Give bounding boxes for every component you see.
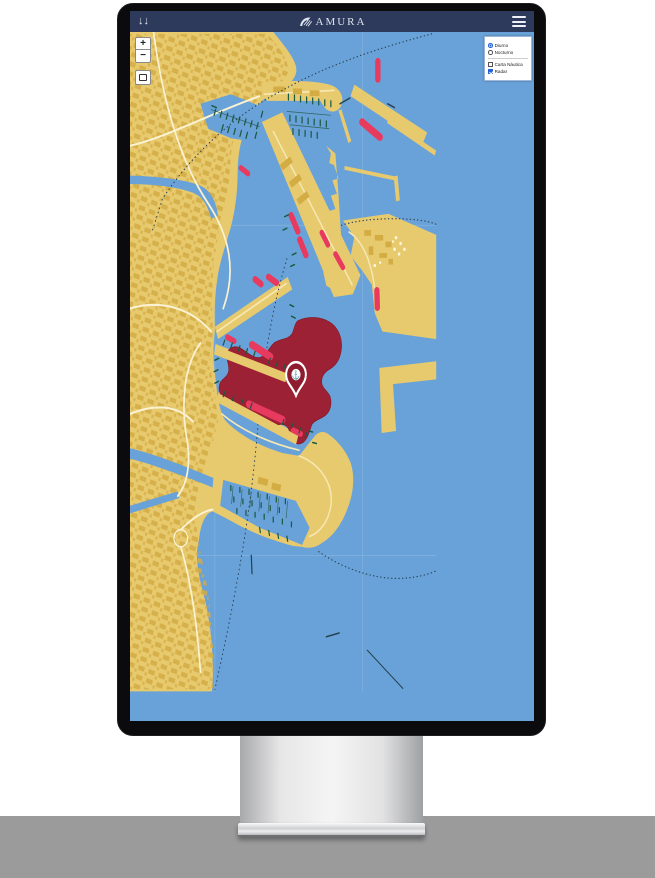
zoom-out-button[interactable]: − — [135, 50, 151, 63]
monitor-stand — [240, 729, 423, 825]
layer-label: Nocturno — [495, 50, 514, 55]
map-viewport[interactable]: ⚓ — [130, 32, 534, 721]
menu-hamburger-icon[interactable] — [512, 16, 526, 27]
checkbox-carta-nautica[interactable] — [488, 62, 493, 67]
zoom-in-button[interactable]: + — [135, 37, 151, 50]
app-logo-text: AMURA — [316, 16, 367, 28]
layer-option-radar[interactable]: Radar — [488, 69, 528, 74]
download-arrows-icon[interactable]: ↓↓ — [138, 16, 149, 27]
screen: ↓↓ AMURA — [130, 11, 534, 721]
radio-nocturno[interactable] — [488, 50, 493, 55]
radio-diurno[interactable] — [488, 43, 493, 48]
map-canvas: ⚓ — [130, 32, 534, 721]
zoom-extent-button[interactable] — [135, 70, 151, 85]
anchor-icon: ⚓ — [292, 369, 300, 380]
extent-square-icon — [139, 74, 147, 81]
layer-option-diurno[interactable]: Diurno — [488, 43, 528, 48]
checkbox-radar[interactable] — [488, 69, 493, 74]
panel-separator — [488, 58, 528, 59]
layer-label: Radar — [495, 69, 508, 74]
top-navbar: ↓↓ AMURA — [130, 11, 534, 32]
monitor-stand-base — [238, 823, 425, 837]
app-logo: AMURA — [130, 11, 534, 32]
layer-panel: Diurno Nocturno Carta Náutica Radar — [484, 36, 532, 81]
layer-option-carta-nautica[interactable]: Carta Náutica — [488, 62, 528, 67]
amura-wave-icon — [298, 15, 313, 28]
layer-option-nocturno[interactable]: Nocturno — [488, 50, 528, 55]
layer-label: Diurno — [495, 43, 509, 48]
monitor-bezel: ↓↓ AMURA — [117, 3, 546, 736]
layer-label: Carta Náutica — [495, 62, 523, 67]
zoom-controls: + − — [135, 37, 151, 85]
